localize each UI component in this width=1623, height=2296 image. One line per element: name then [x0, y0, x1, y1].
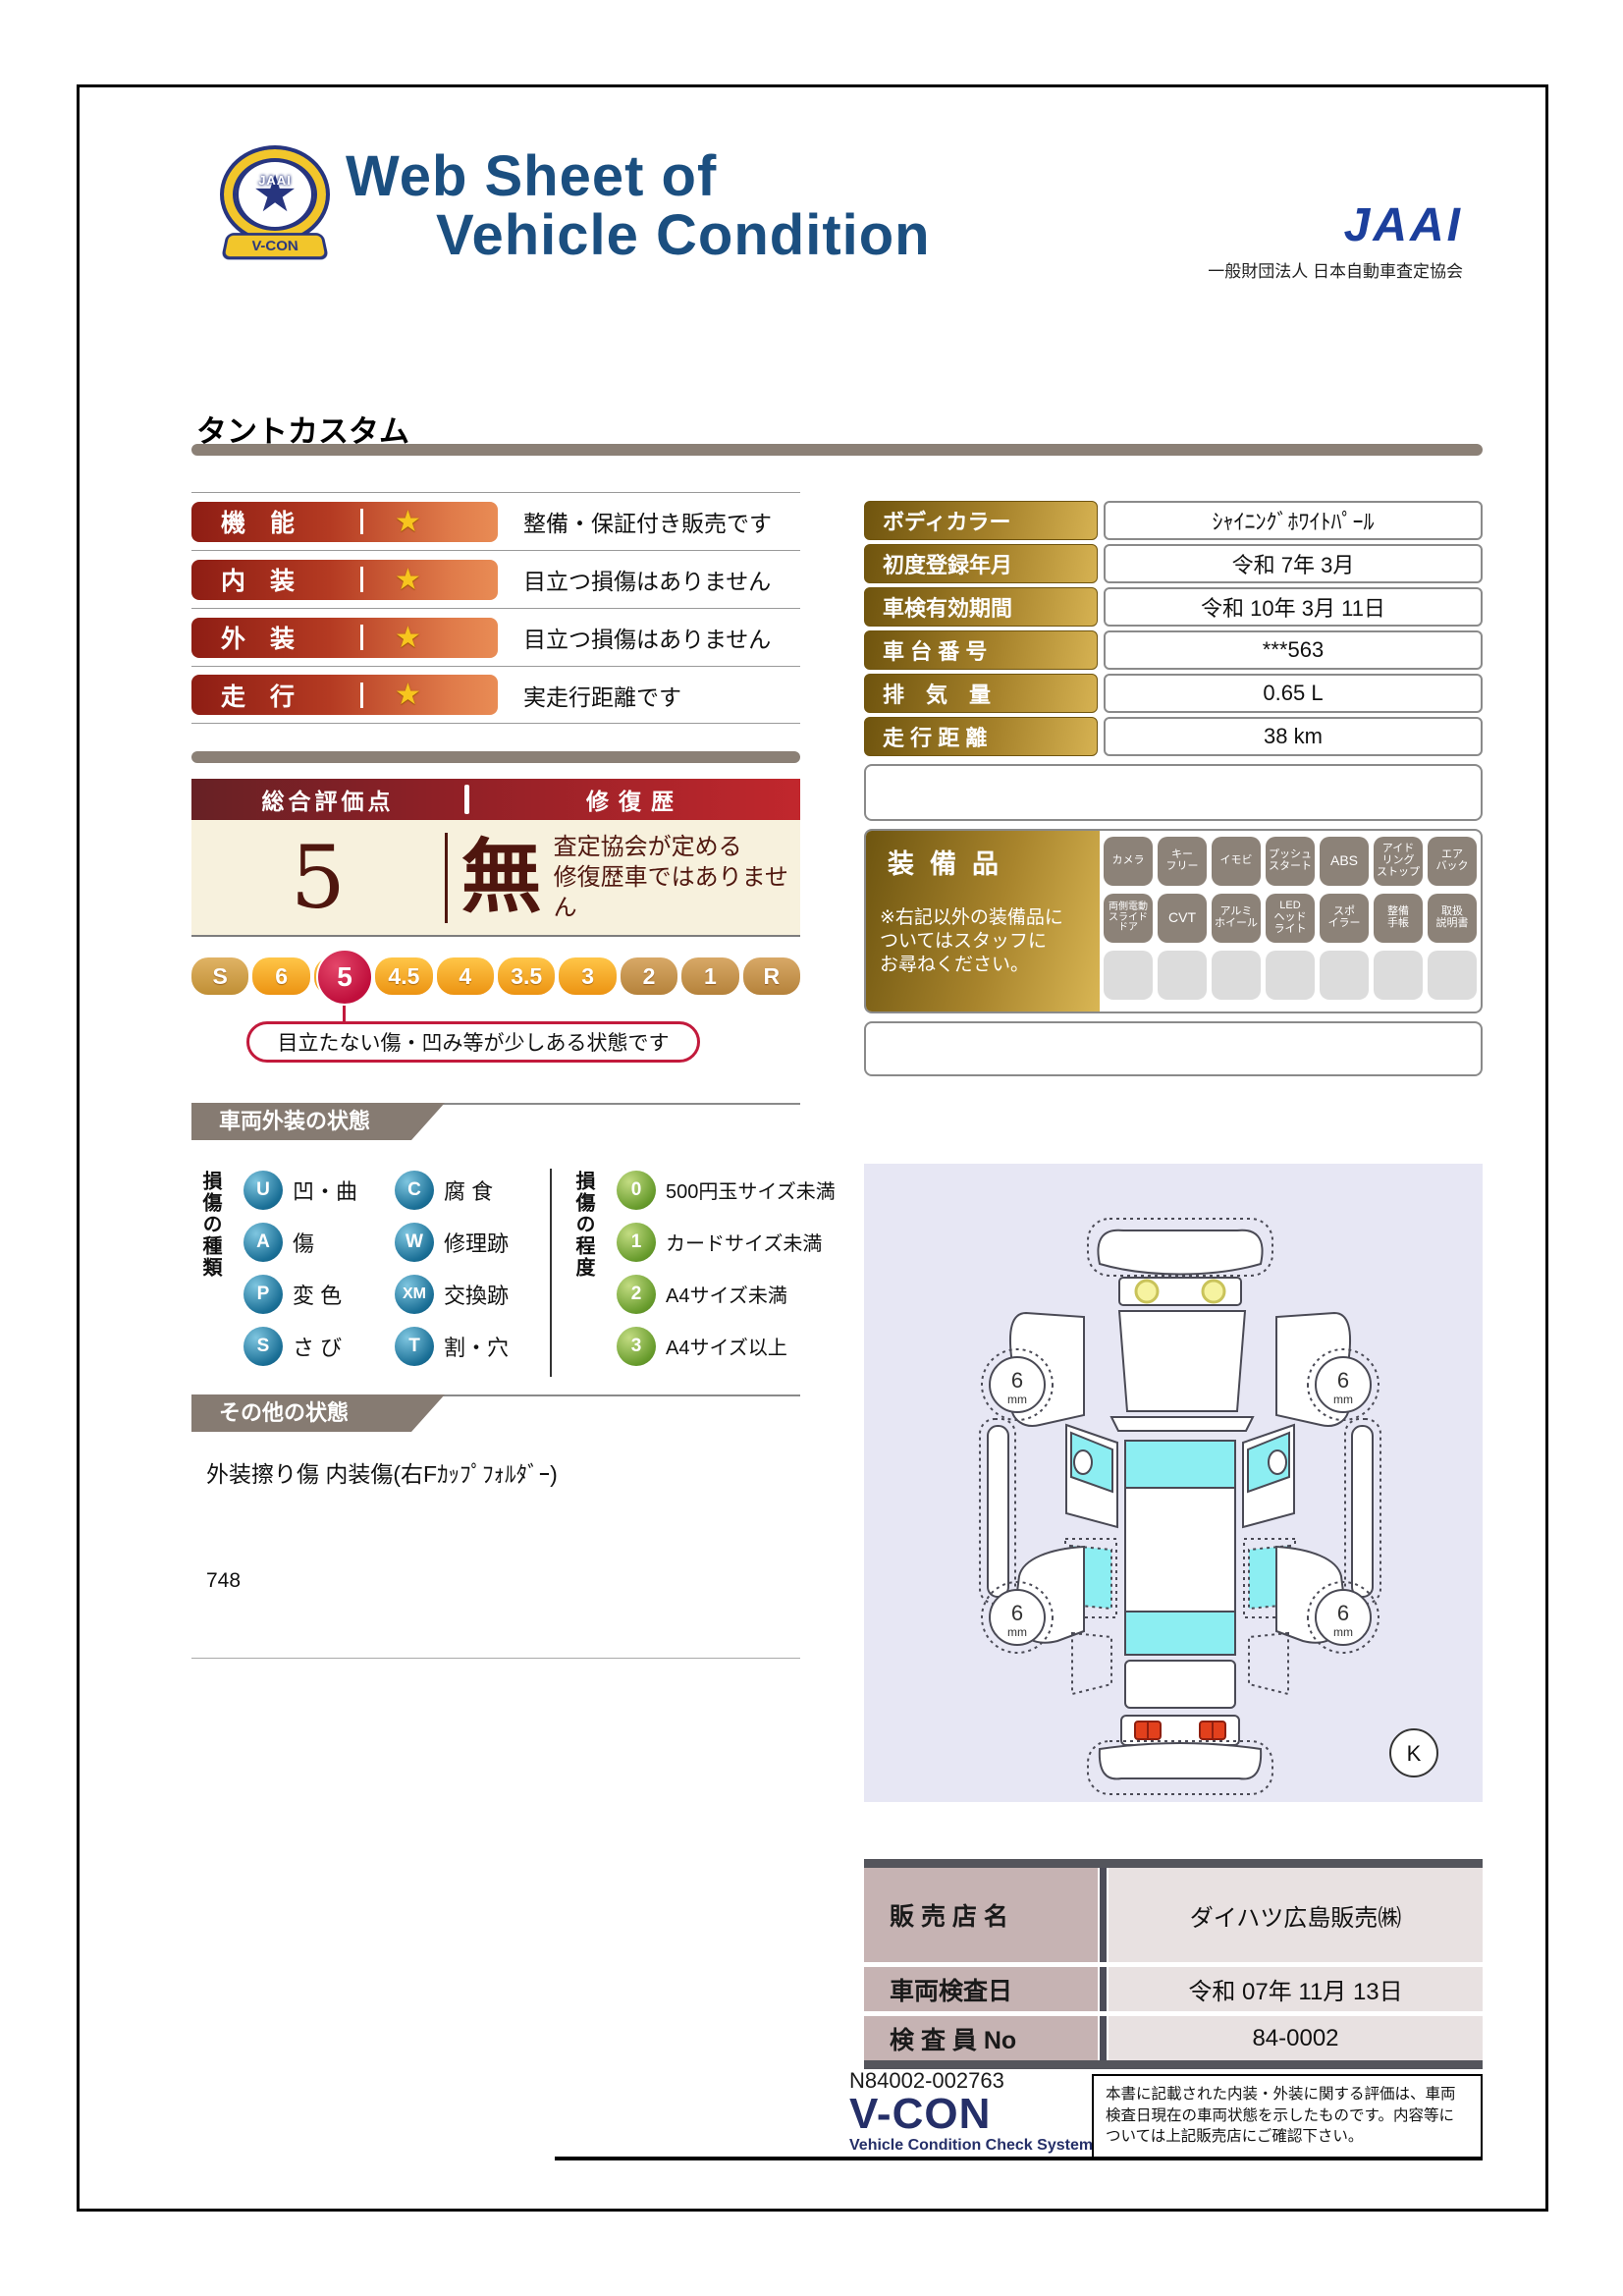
score-callout: 目立たない傷・凹み等が少しある状態です — [246, 1021, 700, 1063]
svg-text:6: 6 — [1011, 1368, 1023, 1393]
equipment-badge: LED ヘッド ライト — [1266, 894, 1315, 943]
dealer-label: 販 売 店 名 — [864, 1868, 1098, 1962]
equipment-badge: アイド リング ストップ — [1374, 837, 1423, 886]
empty-remarks-box — [864, 764, 1483, 821]
svg-text:mm: mm — [1007, 1393, 1027, 1406]
equipment-badge: CVT — [1158, 894, 1207, 943]
scale-seg-s: S — [191, 957, 248, 995]
vcon-tagline: Vehicle Condition Check System — [849, 2137, 1093, 2155]
rating-row-interior: 内 装 ★ 目立つ損傷はありません — [191, 550, 800, 608]
equipment-grid: カメラ キー フリー イモビ プッシュ スタート ABS アイド リング ストッ… — [1104, 837, 1481, 1008]
jaai-subtitle: 一般財団法人 日本自動車査定協会 — [1060, 257, 1463, 282]
legend-row: U 凹・曲 C 腐 食 — [243, 1164, 550, 1216]
dealer-value: ダイハツ広島販売㈱ — [1109, 1868, 1483, 1962]
degree-label: A4サイズ未満 — [666, 1280, 787, 1308]
svg-text:mm: mm — [1333, 1393, 1353, 1406]
dealer-divider — [1100, 2016, 1107, 2060]
damage-code-badge: T — [395, 1327, 434, 1366]
rating-divider — [360, 625, 363, 650]
svg-text:6: 6 — [1337, 1601, 1349, 1625]
repair-flag: 無 — [461, 838, 542, 918]
rating-label: 内 装 — [191, 562, 360, 597]
damage-degree-axis: 損傷の程度 — [569, 1171, 598, 1279]
left-column-rule — [191, 1658, 800, 1659]
dealer-value: 84-0002 — [1109, 2016, 1483, 2060]
info-value: 令和 10年 3月 11日 — [1104, 587, 1483, 627]
damage-type-legend: U 凹・曲 C 腐 食 A 傷 W 修理跡 P 変 色 XM 交換跡 S さ び… — [243, 1164, 550, 1372]
vehicle-condition-sheet: ★ JAAI V-CON Web Sheet of Vehicle Condit… — [0, 0, 1623, 2296]
damage-label: 修理跡 — [444, 1227, 509, 1258]
overall-score-body: 5 無 査定協会が定める 修復歴車ではありません — [191, 820, 800, 937]
damage-code-badge: C — [395, 1171, 434, 1210]
equipment-title: 装備品 — [866, 831, 1100, 881]
svg-text:6: 6 — [1337, 1368, 1349, 1393]
rating-list: 機 能 ★ 整備・保証付き販売です 内 装 ★ 目立つ損傷はありません 外 装 … — [191, 492, 800, 724]
degree-code-badge: 2 — [617, 1275, 656, 1314]
legend-row: 1 カードサイズ未満 — [617, 1216, 813, 1268]
equipment-badge: キー フリー — [1158, 837, 1207, 886]
scale-seg-4-5: 4.5 — [375, 957, 432, 995]
equipment-badge-empty — [1428, 951, 1477, 1000]
rating-desc: 目立つ損傷はありません — [523, 563, 771, 596]
equipment-badge: 取扱 説明書 — [1428, 894, 1477, 943]
dealer-table: 販 売 店 名 ダイハツ広島販売㈱ 車両検査日 令和 07年 11月 13日 検… — [864, 1868, 1483, 2065]
score-scale: S 6 5 4.5 4 3.5 3 2 1 R — [191, 957, 800, 995]
vcon-emblem-icon: ★ JAAI V-CON — [218, 145, 332, 267]
rating-label: 外 装 — [191, 620, 360, 655]
damage-type-axis: 損傷の種類 — [196, 1171, 225, 1279]
repair-desc: 査定協会が定める 修復歴車ではありません — [554, 832, 800, 924]
damage-code-badge: XM — [395, 1275, 434, 1314]
info-value: 38 km — [1104, 717, 1483, 756]
scale-seg-6: 6 — [252, 957, 309, 995]
damage-code-badge: S — [243, 1327, 283, 1366]
svg-text:mm: mm — [1007, 1625, 1027, 1639]
equipment-note: ※右記以外の装備品に ついてはスタッフに お尋ねください。 — [866, 881, 1100, 976]
divider-bar-mid — [191, 751, 800, 763]
equipment-row: カメラ キー フリー イモビ プッシュ スタート ABS アイド リング ストッ… — [1104, 837, 1481, 886]
equipment-badge: アルミ ホイール — [1212, 894, 1261, 943]
scale-seg-r: R — [743, 957, 800, 995]
rating-desc: 実走行距離です — [523, 679, 681, 712]
equipment-badge: イモビ — [1212, 837, 1261, 886]
rating-divider — [360, 683, 363, 708]
equipment-block: 装備品 ※右記以外の装備品に ついてはスタッフに お尋ねください。 カメラ キー… — [864, 829, 1483, 1013]
legend-row: S さ び T 割・穴 — [243, 1320, 550, 1372]
equipment-badge: 整備 手帳 — [1374, 894, 1423, 943]
equipment-title-cell: 装備品 ※右記以外の装備品に ついてはスタッフに お尋ねください。 — [866, 831, 1100, 1011]
damage-degree-legend: 0 500円玉サイズ未満 1 カードサイズ未満 2 A4サイズ未満 3 A4サイ… — [617, 1164, 813, 1372]
degree-label: カードサイズ未満 — [666, 1228, 822, 1256]
equipment-badge-empty — [1266, 951, 1315, 1000]
equipment-row: 両側電動 スライド ドア CVT アルミ ホイール LED ヘッド ライト スポ… — [1104, 894, 1481, 943]
rating-row-mileage: 走 行 ★ 実走行距離です — [191, 666, 800, 724]
selected-score-marker: 5 — [316, 949, 373, 1006]
damage-label: 凹・曲 — [293, 1175, 395, 1206]
equipment-badge: カメラ — [1104, 837, 1153, 886]
dealer-divider — [1100, 1868, 1107, 1962]
other-condition-code: 748 — [206, 1569, 241, 1593]
scale-seg-1: 1 — [681, 957, 738, 995]
rating-bar: 走 行 ★ — [191, 675, 498, 715]
damage-label: 傷 — [293, 1227, 395, 1258]
info-label: 車 台 番 号 — [864, 630, 1098, 670]
damage-diagram-panel: 6 mm 6 mm 6 mm 6 mm K — [864, 1164, 1483, 1802]
legend-row: A 傷 W 修理跡 — [243, 1216, 550, 1268]
legend-divider — [550, 1169, 552, 1377]
score-divider — [445, 833, 448, 923]
rating-label: 走 行 — [191, 678, 360, 713]
equipment-badge: 両側電動 スライド ドア — [1104, 894, 1153, 943]
dealer-label: 車両検査日 — [864, 1967, 1098, 2011]
equipment-badge-empty — [1104, 951, 1153, 1000]
overall-score-title: 総合評価点 — [191, 783, 464, 816]
other-condition-text: 外装擦り傷 内装傷(右Fｶｯﾌﾟﾌｫﾙﾀﾞｰ) — [206, 1455, 558, 1489]
degree-code-badge: 0 — [617, 1171, 656, 1210]
star-icon: ★ — [395, 621, 421, 655]
damage-code-badge: W — [395, 1223, 434, 1262]
table-row: 初度登録年月 令和 7年 3月 — [864, 544, 1483, 583]
equipment-badge-empty — [1374, 951, 1423, 1000]
scale-seg-3: 3 — [559, 957, 616, 995]
table-row: 走 行 距 離 38 km — [864, 717, 1483, 756]
rating-bar: 機 能 ★ — [191, 502, 498, 542]
info-value: 令和 7年 3月 — [1104, 544, 1483, 583]
damage-label: 割・穴 — [444, 1331, 509, 1362]
emblem-ribbon: V-CON — [221, 233, 329, 259]
info-label: 走 行 距 離 — [864, 717, 1098, 756]
info-value: 0.65 L — [1104, 674, 1483, 713]
info-label: 車検有効期間 — [864, 587, 1098, 627]
exterior-section-header: 車両外装の状態 — [191, 1103, 445, 1140]
scale-seg-2: 2 — [621, 957, 677, 995]
damage-code-badge: P — [243, 1275, 283, 1314]
rating-desc: 整備・保証付き販売です — [523, 505, 772, 538]
footer-rule — [555, 2157, 1483, 2160]
equipment-badge: スポ イラー — [1320, 894, 1369, 943]
table-row: ボディカラー ｼｬｲﾆﾝｸﾞﾎﾜｲﾄﾊﾟｰﾙ — [864, 501, 1483, 540]
sheet-title-line1: Web Sheet of — [346, 143, 717, 209]
equipment-badge: エア バック — [1428, 837, 1477, 886]
degree-code-badge: 1 — [617, 1223, 656, 1262]
star-icon: ★ — [395, 505, 421, 539]
sheet-title-line2: Vehicle Condition — [436, 202, 931, 268]
vehicle-info-table: ボディカラー ｼｬｲﾆﾝｸﾞﾎﾜｲﾄﾊﾟｰﾙ 初度登録年月 令和 7年 3月 車… — [864, 501, 1483, 760]
table-row: 車 台 番 号 ***563 — [864, 630, 1483, 670]
svg-text:mm: mm — [1333, 1625, 1353, 1639]
degree-label: A4サイズ以上 — [666, 1332, 787, 1360]
dealer-value: 令和 07年 11月 13日 — [1109, 1967, 1483, 2011]
legend-row: 0 500円玉サイズ未満 — [617, 1164, 813, 1216]
disclaimer-box: 本書に記載された内装・外装に関する評価は、車両検査日現在の車両状態を示したもので… — [1092, 2074, 1483, 2159]
equipment-badge-empty — [1158, 951, 1207, 1000]
rating-row-exterior: 外 装 ★ 目立つ損傷はありません — [191, 608, 800, 666]
degree-label: 500円玉サイズ未満 — [666, 1175, 836, 1204]
dealer-label: 検 査 員 No — [864, 2016, 1098, 2060]
rating-divider — [360, 509, 363, 534]
rating-bar: 内 装 ★ — [191, 560, 498, 600]
equipment-badge: ABS — [1320, 837, 1369, 886]
jaai-logo: JAAI — [1159, 202, 1463, 249]
equipment-row-empty — [1104, 951, 1481, 1000]
overall-score-header: 総合評価点 修復歴 — [191, 779, 800, 820]
degree-code-badge: 3 — [617, 1327, 656, 1366]
rating-bar: 外 装 ★ — [191, 618, 498, 658]
rating-label: 機 能 — [191, 504, 360, 539]
car-exploded-diagram: 6 mm 6 mm 6 mm 6 mm K — [864, 1164, 1483, 1802]
equipment-badge: プッシュ スタート — [1266, 837, 1315, 886]
scale-seg-4: 4 — [437, 957, 494, 995]
table-row: 排 気 量 0.65 L — [864, 674, 1483, 713]
other-section-header: その他の状態 — [191, 1394, 445, 1432]
dealer-divider — [1100, 1967, 1107, 2011]
rating-row-function: 機 能 ★ 整備・保証付き販売です — [191, 492, 800, 550]
info-label: 排 気 量 — [864, 674, 1098, 713]
overall-score-value: 5 — [191, 835, 445, 921]
vcon-wordmark: V-CON — [849, 2090, 991, 2139]
emblem-core: ★ — [236, 159, 314, 230]
info-value: ｼｬｲﾆﾝｸﾞﾎﾜｲﾄﾊﾟｰﾙ — [1104, 501, 1483, 540]
rating-divider — [360, 567, 363, 592]
damage-code-badge: A — [243, 1223, 283, 1262]
damage-label: さ び — [293, 1331, 395, 1362]
star-icon: ★ — [395, 563, 421, 597]
table-row: 車検有効期間 令和 10年 3月 11日 — [864, 587, 1483, 627]
legend-row: P 変 色 XM 交換跡 — [243, 1268, 550, 1320]
rating-desc: 目立つ損傷はありません — [523, 621, 771, 654]
info-label: 初度登録年月 — [864, 544, 1098, 583]
svg-text:K: K — [1407, 1741, 1422, 1766]
emblem-center-text: JAAI — [218, 173, 332, 188]
equipment-badge-empty — [1320, 951, 1369, 1000]
damage-label: 変 色 — [293, 1279, 395, 1310]
damage-label: 交換跡 — [444, 1279, 509, 1310]
divider-bar-top — [191, 444, 1483, 456]
dealer-table-topbar — [864, 1859, 1483, 1868]
table-row: 車両検査日 令和 07年 11月 13日 — [864, 1967, 1483, 2011]
svg-text:6: 6 — [1011, 1601, 1023, 1625]
equipment-badge-empty — [1212, 951, 1261, 1000]
info-label: ボディカラー — [864, 501, 1098, 540]
repair-history-title: 修復歴 — [469, 783, 800, 816]
damage-code-badge: U — [243, 1171, 283, 1210]
table-row: 検 査 員 No 84-0002 — [864, 2016, 1483, 2060]
star-icon: ★ — [395, 678, 421, 712]
table-row: 販 売 店 名 ダイハツ広島販売㈱ — [864, 1868, 1483, 1962]
damage-label: 腐 食 — [444, 1175, 493, 1206]
legend-row: 3 A4サイズ以上 — [617, 1320, 813, 1372]
key-mark: K — [1390, 1729, 1437, 1777]
empty-remarks-box2 — [864, 1021, 1483, 1076]
legend-row: 2 A4サイズ未満 — [617, 1268, 813, 1320]
scale-seg-3-5: 3.5 — [498, 957, 555, 995]
info-value: ***563 — [1104, 630, 1483, 670]
